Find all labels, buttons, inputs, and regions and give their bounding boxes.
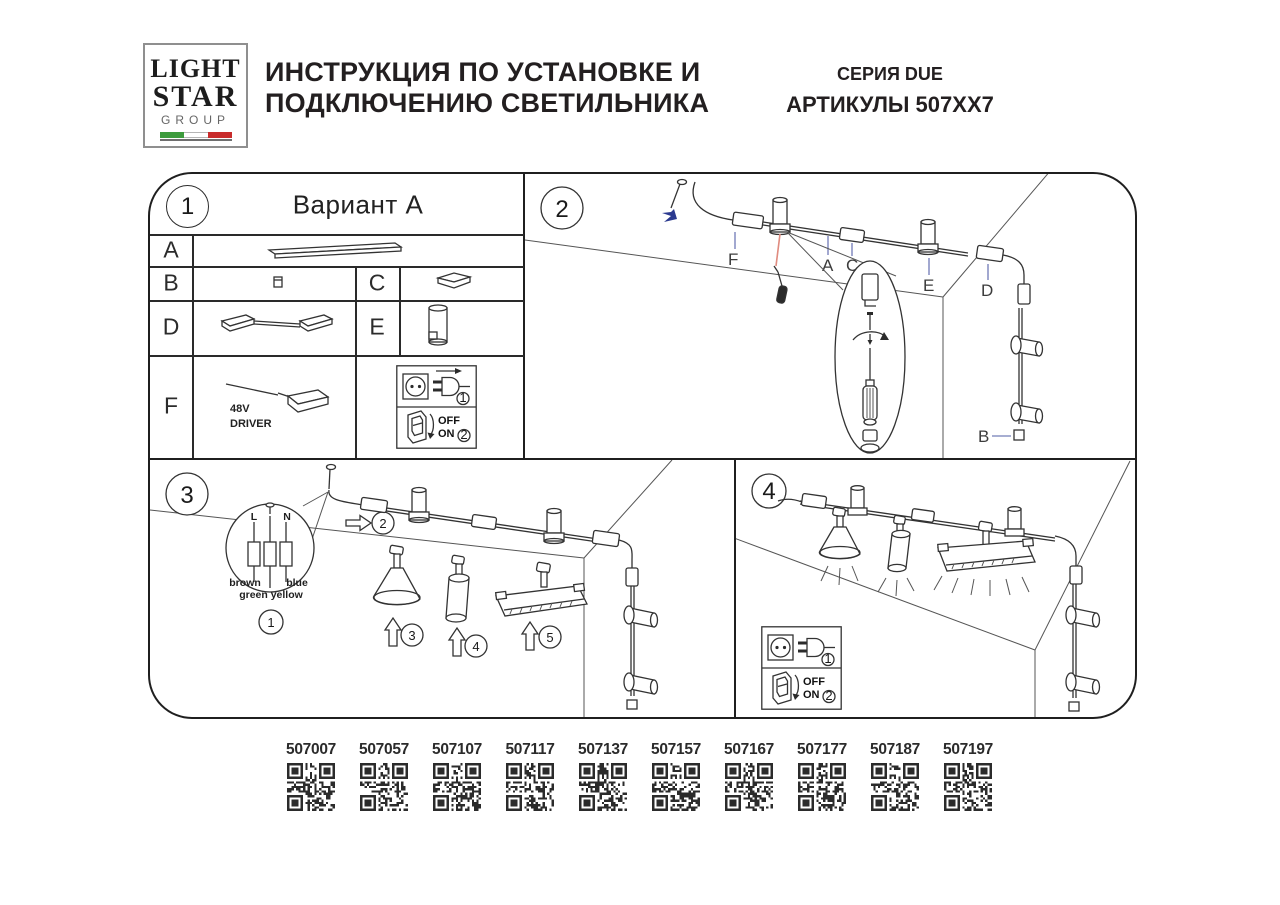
- slide-arrow-icon: [346, 516, 371, 531]
- end-cap-icon: [274, 277, 282, 287]
- red-leader-line: [776, 234, 780, 266]
- ceiling-screw: [327, 465, 336, 490]
- socket-icon: [403, 374, 428, 399]
- qr-item: 507057: [356, 741, 412, 811]
- stand-cylinder-icon: [429, 305, 447, 345]
- power-cord: [329, 490, 363, 505]
- track-stand-2: [918, 220, 938, 255]
- step-circle-3: 3: [408, 628, 415, 643]
- wall-spot-2: [1066, 673, 1100, 694]
- screwdriver-small: [774, 266, 788, 304]
- qr-article-number: 507137: [575, 741, 631, 759]
- logo-star-text: STAR: [145, 82, 246, 111]
- track-stand-2: [1005, 507, 1024, 536]
- step-circle-4: 4: [472, 639, 479, 654]
- switch-step-number: 2: [460, 427, 467, 442]
- flag-white-stripe: [184, 132, 208, 138]
- diagram-board: 1 Вариант A A B C D E F: [148, 172, 1137, 719]
- room-lines: [525, 174, 1051, 458]
- label-e: E: [923, 276, 934, 295]
- up-arrow-icon: [385, 618, 401, 646]
- series-name: СЕРИЯ DUE: [735, 63, 1045, 85]
- label-a: A: [822, 256, 834, 275]
- linear-lamp: [496, 562, 587, 616]
- qr-article-number: 507187: [867, 741, 923, 759]
- qr-item: 507197: [940, 741, 996, 811]
- title-line-2: ПОДКЛЮЧЕНИЮ СВЕТИЛЬНИКА: [265, 88, 709, 119]
- qr-item: 507107: [429, 741, 485, 811]
- qr-article-number: 507007: [283, 741, 339, 759]
- track-rail-icon: [269, 243, 401, 258]
- qr-item: 507167: [721, 741, 777, 811]
- qr-code-image: [433, 763, 481, 811]
- series-block: СЕРИЯ DUE АРТИКУЛЫ 507XX7: [735, 63, 1045, 118]
- on-label: ON: [438, 428, 455, 440]
- lightstar-logo: LIGHT STAR GROUP: [143, 43, 248, 148]
- corner-cable-icon: [222, 315, 332, 331]
- label-f: F: [728, 250, 738, 269]
- end-cap-b: [1014, 430, 1024, 440]
- qr-code-image: [360, 763, 408, 811]
- qr-article-number: 507197: [940, 741, 996, 759]
- qr-code-image: [871, 763, 919, 811]
- driver-voltage: 48V: [230, 402, 272, 417]
- qr-code-image: [798, 763, 846, 811]
- driver-connector-f: [732, 212, 764, 229]
- corner-cable: [1055, 536, 1082, 584]
- end-cap: [1069, 702, 1079, 711]
- qr-article-number: 507057: [356, 741, 412, 759]
- track-connector: [471, 514, 496, 529]
- on-label: ON: [803, 689, 820, 701]
- qr-article-number: 507117: [502, 741, 558, 759]
- blue-arrow-icon: [662, 209, 677, 222]
- step-circle-5: 5: [546, 630, 553, 645]
- instruction-sheet: LIGHT STAR GROUP ИНСТРУКЦИЯ ПО УСТАНОВКЕ…: [0, 0, 1280, 905]
- magnifier-line: [787, 232, 843, 290]
- italian-flag-icon: [160, 132, 232, 141]
- driver-connector: [360, 497, 387, 513]
- qr-code-image: [725, 763, 773, 811]
- qr-item: 507137: [575, 741, 631, 811]
- wire-blue-label: blue: [286, 577, 308, 589]
- qr-code-image: [652, 763, 700, 811]
- qr-item: 507007: [283, 741, 339, 811]
- step-2-number: 2: [555, 196, 568, 223]
- qr-item: 507177: [794, 741, 850, 811]
- logo-light-text: LIGHT: [145, 56, 246, 82]
- driver-connector: [801, 493, 826, 508]
- cylinder-spot-mounted: [878, 515, 914, 596]
- step-4-number: 4: [762, 478, 775, 505]
- plug-step-number: 1: [459, 390, 466, 405]
- switch-step-number: 2: [825, 688, 832, 703]
- logo-group-text: GROUP: [145, 113, 246, 127]
- cylinder-spot-lamp: [446, 555, 469, 622]
- panel-3-wiring: 3 L: [150, 460, 734, 719]
- track-stand-1: [848, 486, 867, 515]
- power-steps-box: 1 OFF ON 2: [396, 365, 477, 449]
- qr-item: 507157: [648, 741, 704, 811]
- panel-4-finished: 4: [736, 460, 1137, 719]
- power-cord: [693, 182, 733, 220]
- qr-article-number: 507177: [794, 741, 850, 759]
- qr-code-image: [579, 763, 627, 811]
- qr-item: 507187: [867, 741, 923, 811]
- power-steps-box: 1 OFF ON 2: [762, 627, 841, 709]
- qr-code-image: [506, 763, 554, 811]
- driver-label: 48V DRIVER: [230, 402, 272, 432]
- panel-2-mounting: 2: [525, 174, 1137, 458]
- off-label: OFF: [438, 415, 460, 427]
- wall-spot-1: [624, 606, 658, 627]
- step-circle-2: 2: [379, 516, 386, 531]
- end-cap: [627, 700, 637, 709]
- ceiling-screw: [671, 180, 687, 209]
- title-line-1: ИНСТРУКЦИЯ ПО УСТАНОВКЕ И: [265, 57, 709, 88]
- track-connector-c: [839, 227, 864, 242]
- wall-spot-2: [624, 673, 658, 694]
- off-label: OFF: [803, 676, 825, 688]
- socket-icon: [768, 635, 793, 660]
- qr-codes-row: 5070075070575071075071175071375071575071…: [283, 741, 996, 811]
- qr-item: 507117: [502, 741, 558, 811]
- articles-label: АРТИКУЛЫ 507XX7: [735, 92, 1045, 118]
- up-arrow-icon: [522, 622, 538, 650]
- qr-code-image: [287, 763, 335, 811]
- track-connector: [911, 509, 934, 523]
- flag-red-stripe: [208, 132, 232, 138]
- track-stand-1: [409, 488, 429, 523]
- track-stand-1: [770, 198, 790, 235]
- magnifier-detail: [835, 261, 905, 453]
- wire-green-yellow-label: green yellow: [239, 589, 303, 601]
- qr-article-number: 507167: [721, 741, 777, 759]
- wall-spot-2: [1011, 403, 1043, 423]
- label-b: B: [978, 427, 989, 446]
- connector-icon: [438, 273, 470, 288]
- cone-lamp-mounted: [819, 507, 860, 585]
- wall-spot-1: [1066, 606, 1100, 627]
- up-arrow-icon: [449, 628, 465, 656]
- track-stand-2: [544, 509, 564, 544]
- panel-1-parts-table: 1 Вариант A A B C D E F: [150, 174, 524, 458]
- page-title: ИНСТРУКЦИЯ ПО УСТАНОВКЕ И ПОДКЛЮЧЕНИЮ СВ…: [265, 57, 709, 119]
- plug-step-number: 1: [824, 651, 831, 666]
- wall-spot-1: [1011, 336, 1043, 356]
- qr-article-number: 507157: [648, 741, 704, 759]
- wire-brown-label: brown: [229, 577, 261, 589]
- wire-n-label: N: [283, 511, 291, 523]
- wire-l-label: L: [251, 511, 258, 523]
- cone-lamp: [373, 545, 420, 605]
- label-d: D: [981, 281, 993, 300]
- qr-code-image: [944, 763, 992, 811]
- qr-article-number: 507107: [429, 741, 485, 759]
- corner-connector: [592, 530, 638, 586]
- step-circle-1: 1: [267, 615, 274, 630]
- step-3-number: 3: [180, 482, 193, 509]
- flag-green-stripe: [160, 132, 184, 138]
- driver-word: DRIVER: [230, 417, 272, 432]
